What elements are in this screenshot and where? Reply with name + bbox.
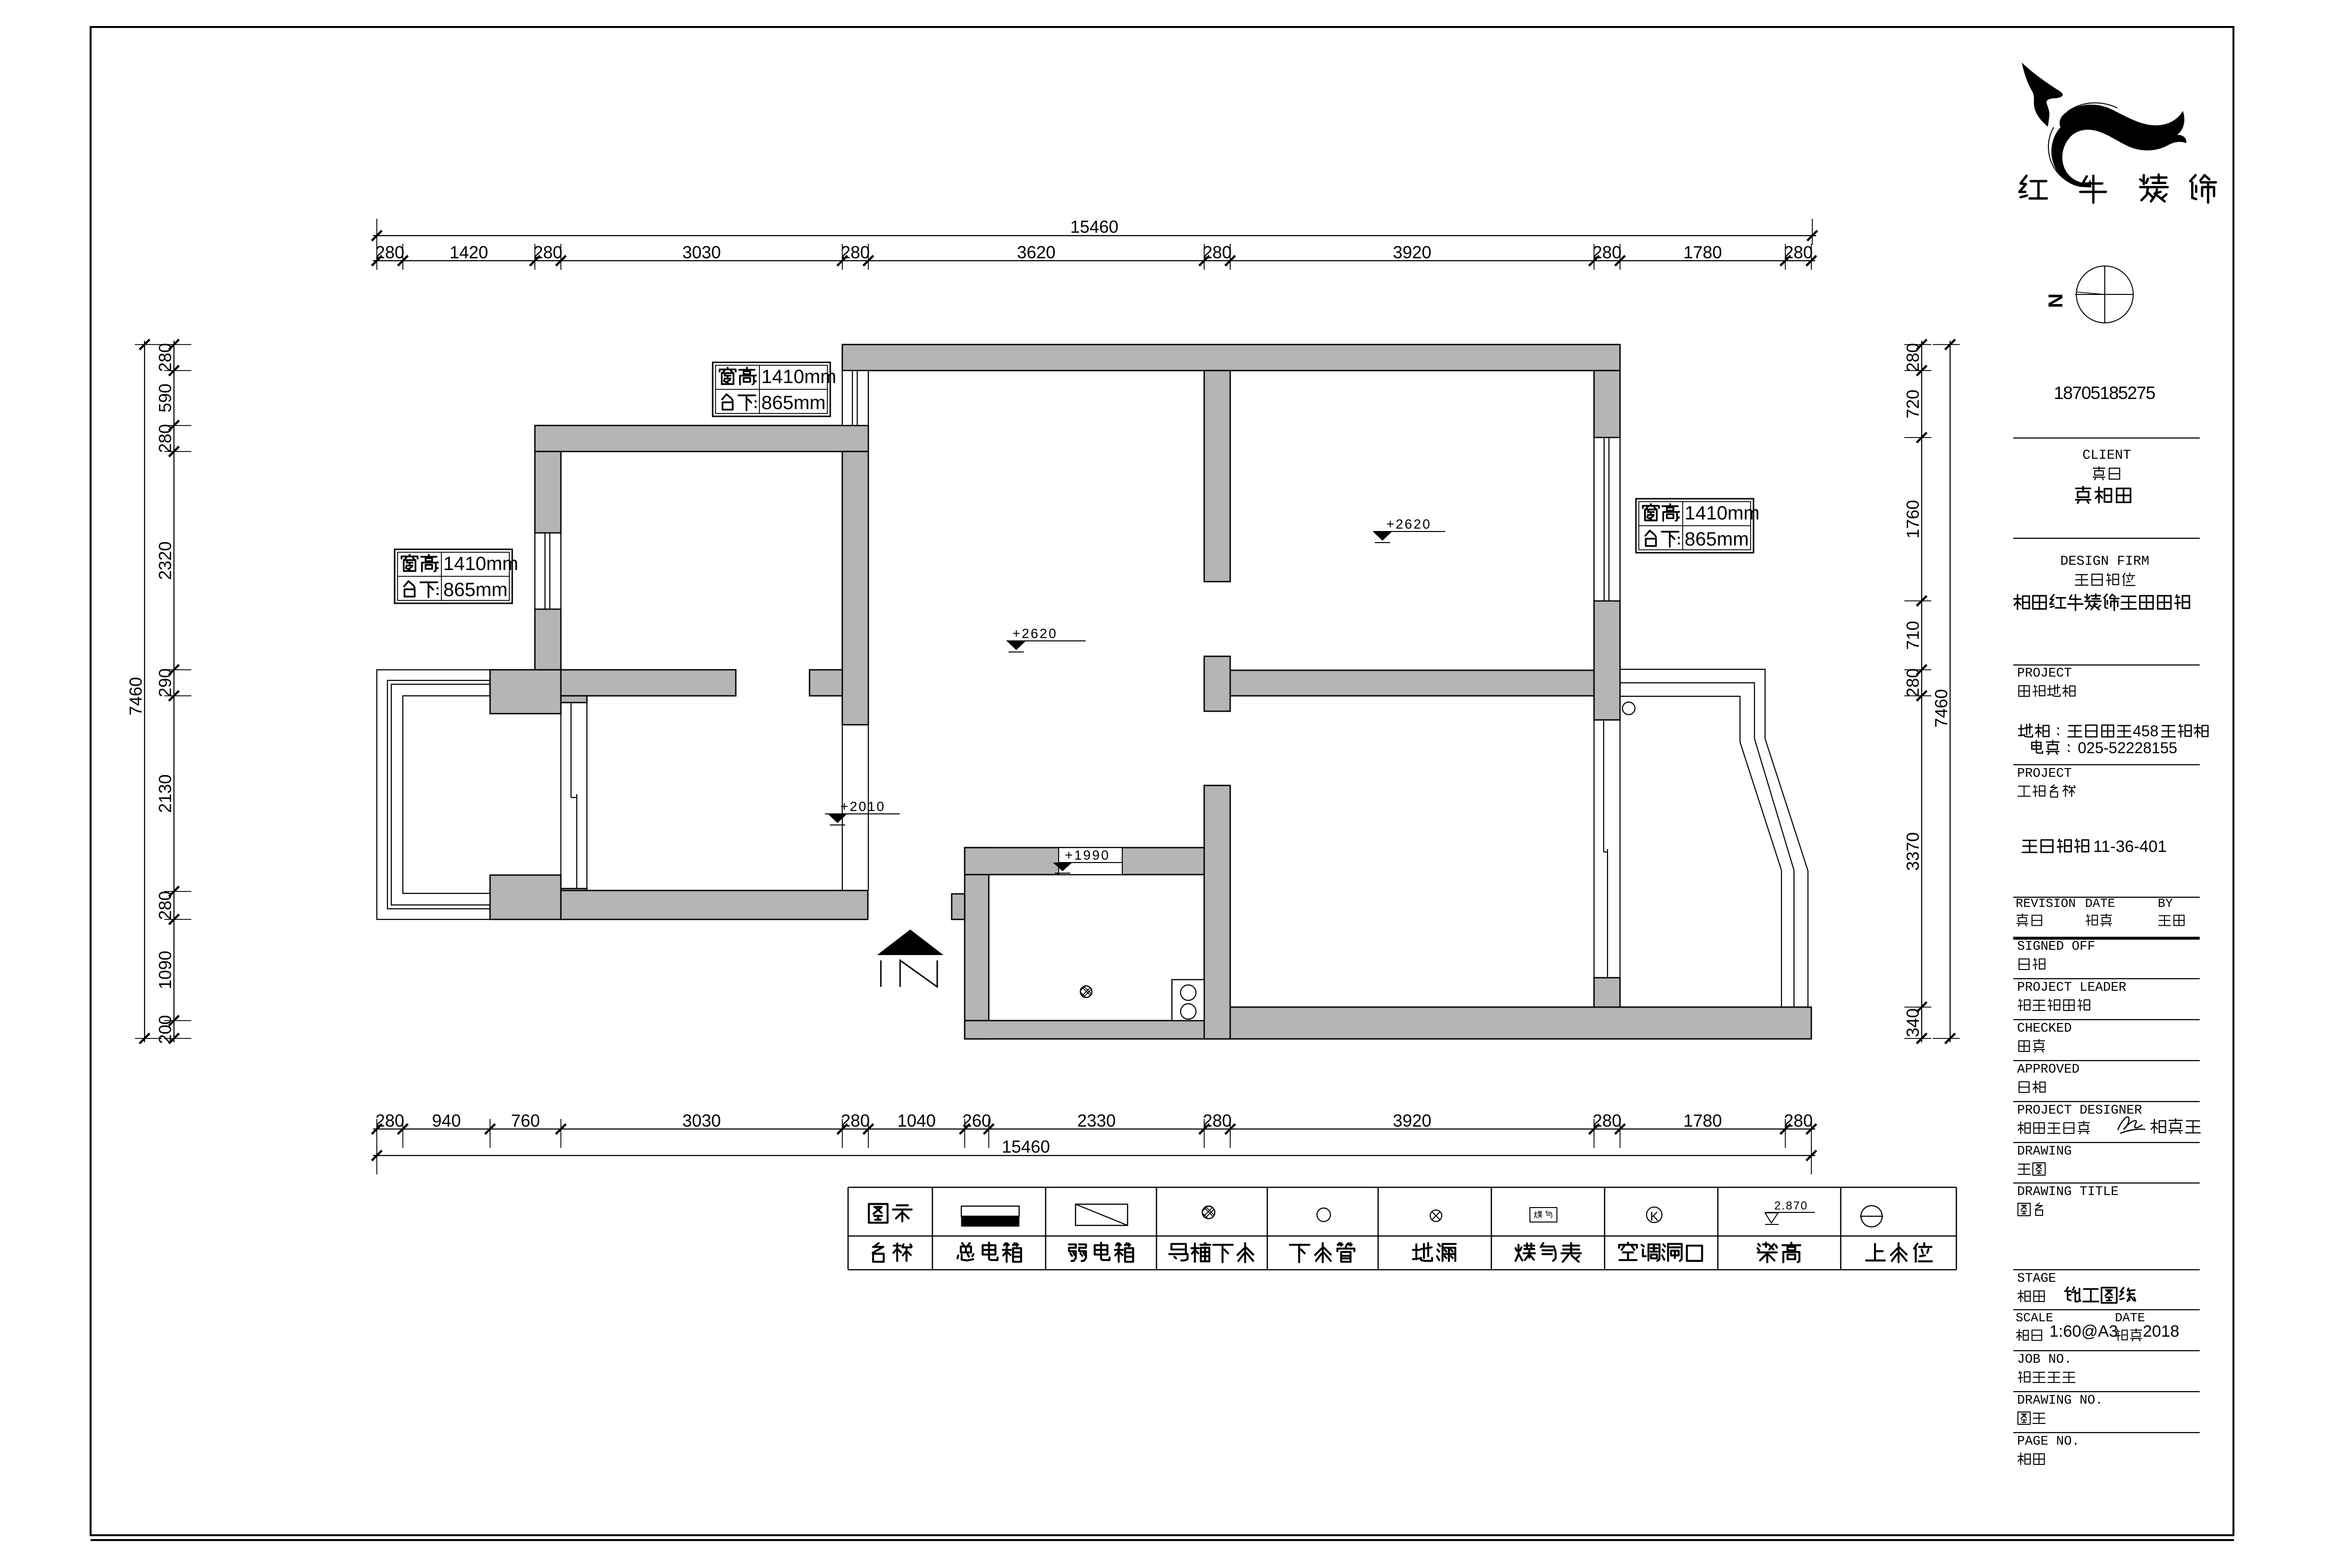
svg-text:710: 710 [1903, 621, 1923, 650]
svg-text:K: K [1650, 1209, 1659, 1223]
svg-text:SCALE: SCALE [2016, 1311, 2053, 1325]
svg-text:280: 280 [1593, 1111, 1621, 1130]
svg-text:1410mm: 1410mm [761, 366, 837, 387]
svg-text:280: 280 [155, 424, 175, 453]
svg-text:APPROVED: APPROVED [2017, 1063, 2080, 1077]
svg-text:3920: 3920 [1393, 1111, 1431, 1130]
svg-text:DRAWING TITLE: DRAWING TITLE [2017, 1185, 2119, 1199]
svg-text:DATE: DATE [2085, 896, 2115, 911]
svg-text:280: 280 [1903, 668, 1923, 697]
svg-text:2330: 2330 [1077, 1111, 1116, 1130]
svg-text:3620: 3620 [1017, 242, 1055, 262]
svg-text:PAGE NO.: PAGE NO. [2017, 1435, 2080, 1449]
svg-text:940: 940 [432, 1111, 461, 1130]
svg-text:2130: 2130 [155, 774, 175, 813]
svg-text:1760: 1760 [1903, 500, 1923, 538]
svg-text:280: 280 [1593, 242, 1621, 262]
svg-text:280: 280 [155, 343, 175, 372]
svg-text:DATE: DATE [2115, 1311, 2145, 1325]
svg-text:15460: 15460 [1002, 1137, 1050, 1156]
svg-text:+2620: +2620 [1012, 626, 1058, 641]
svg-text:BY: BY [2158, 896, 2173, 911]
svg-text:CHECKED: CHECKED [2017, 1022, 2072, 1036]
svg-text:3030: 3030 [682, 242, 721, 262]
svg-text:280: 280 [1203, 242, 1232, 262]
svg-text:200: 200 [155, 1015, 175, 1044]
svg-text:3030: 3030 [682, 1111, 721, 1130]
svg-text:3920: 3920 [1393, 242, 1431, 262]
svg-text:2.870: 2.870 [1774, 1199, 1808, 1212]
svg-text:+2620: +2620 [1386, 517, 1432, 532]
svg-text:865mm: 865mm [443, 579, 507, 600]
svg-text:1040: 1040 [897, 1111, 936, 1130]
svg-text:11-36-401: 11-36-401 [2093, 837, 2167, 856]
svg-text:290: 290 [155, 668, 175, 697]
svg-text:280: 280 [1903, 343, 1923, 372]
svg-text:PROJECT LEADER: PROJECT LEADER [2017, 981, 2126, 995]
svg-text:JOB NO.: JOB NO. [2017, 1353, 2072, 1367]
svg-text:PROJECT: PROJECT [2017, 767, 2072, 781]
svg-text:CLIENT: CLIENT [2083, 448, 2131, 463]
svg-text:340: 340 [1903, 1008, 1923, 1037]
svg-text:PROJECT DESIGNER: PROJECT DESIGNER [2017, 1103, 2142, 1118]
svg-text:STAGE: STAGE [2017, 1272, 2056, 1286]
svg-text:280: 280 [155, 891, 175, 920]
svg-text:1090: 1090 [155, 951, 175, 989]
svg-text:DRAWING: DRAWING [2017, 1144, 2072, 1159]
svg-text:7460: 7460 [126, 677, 146, 716]
svg-text:+1990: +1990 [1065, 848, 1110, 863]
svg-text:280: 280 [1784, 1111, 1813, 1130]
svg-text:280: 280 [375, 1111, 404, 1130]
svg-text:280: 280 [841, 242, 870, 262]
svg-text:280: 280 [533, 242, 562, 262]
svg-text:260: 260 [962, 1111, 991, 1130]
svg-text:15460: 15460 [1070, 217, 1118, 237]
svg-text:1780: 1780 [1683, 242, 1722, 262]
svg-text:720: 720 [1903, 389, 1923, 418]
svg-text:DESIGN FIRM: DESIGN FIRM [2060, 554, 2150, 569]
svg-text:18705185275: 18705185275 [2054, 383, 2155, 403]
svg-text:7460: 7460 [1931, 689, 1951, 728]
svg-text:N: N [2044, 293, 2067, 308]
svg-text:1410mm: 1410mm [443, 553, 518, 574]
svg-text:590: 590 [155, 384, 175, 412]
svg-text:280: 280 [841, 1111, 870, 1130]
svg-text:3370: 3370 [1903, 832, 1923, 871]
svg-text:1:60@A3: 1:60@A3 [2049, 1322, 2118, 1341]
svg-text:280: 280 [375, 242, 404, 262]
svg-text:REVISION: REVISION [2016, 896, 2076, 911]
svg-text:DRAWING NO.: DRAWING NO. [2017, 1394, 2103, 1408]
svg-text:1420: 1420 [450, 242, 488, 262]
svg-text:SIGNED OFF: SIGNED OFF [2017, 940, 2095, 954]
svg-text:865mm: 865mm [761, 392, 825, 413]
svg-text:280: 280 [1784, 242, 1813, 262]
svg-text:760: 760 [511, 1111, 540, 1130]
svg-text:1780: 1780 [1683, 1111, 1722, 1130]
svg-text:+2010: +2010 [840, 799, 886, 814]
svg-text:280: 280 [1203, 1111, 1232, 1130]
svg-text:458: 458 [2133, 722, 2158, 740]
svg-text:865mm: 865mm [1685, 529, 1749, 550]
svg-text:2320: 2320 [155, 541, 175, 580]
svg-text:2018: 2018 [2143, 1322, 2179, 1341]
svg-text:025-52228155: 025-52228155 [2078, 739, 2177, 757]
svg-text:PROJECT: PROJECT [2017, 666, 2072, 681]
svg-text:1410mm: 1410mm [1685, 503, 1760, 524]
